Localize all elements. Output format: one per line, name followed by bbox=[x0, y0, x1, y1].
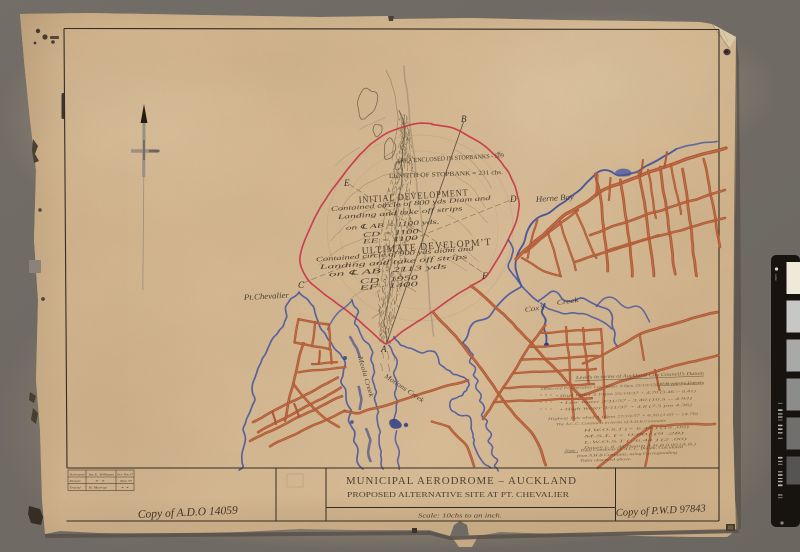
svg-text:C: C bbox=[298, 280, 305, 290]
svg-text:Jas E. Williams: Jas E. Williams bbox=[88, 473, 115, 477]
svg-text:• •: • • bbox=[95, 479, 105, 483]
svg-text:Surveyed: Surveyed bbox=[70, 473, 86, 477]
svg-text:Drawn: Drawn bbox=[68, 479, 81, 483]
svg-text:Scale: 10chs to an inch.: Scale: 10chs to an inch. bbox=[418, 513, 502, 520]
svg-text:Nov 37: Nov 37 bbox=[119, 479, 133, 483]
svg-text:E: E bbox=[343, 178, 350, 188]
svg-text:A: A bbox=[380, 344, 387, 354]
svg-text:B: B bbox=[461, 114, 467, 124]
svg-text:x-rite: x-rite bbox=[774, 274, 778, 281]
svg-text:ac: ac bbox=[497, 150, 502, 155]
svg-text:R. Murray: R. Murray bbox=[88, 486, 108, 490]
svg-text:PROPOSED ALTERNATIVE SITE AT: PROPOSED ALTERNATIVE SITE AT PT. CHEVALI… bbox=[347, 490, 570, 499]
svg-text:F: F bbox=[481, 271, 488, 281]
svg-text:• •: • • bbox=[121, 486, 129, 490]
svg-text:Traced: Traced bbox=[70, 486, 81, 490]
svg-text:MUNICIPAL AERODROME – AUCKLAN: MUNICIPAL AERODROME – AUCKLAND bbox=[346, 475, 577, 487]
svg-text:Oct- Nov 37: Oct- Nov 37 bbox=[117, 473, 134, 477]
svg-text:D: D bbox=[509, 194, 517, 204]
